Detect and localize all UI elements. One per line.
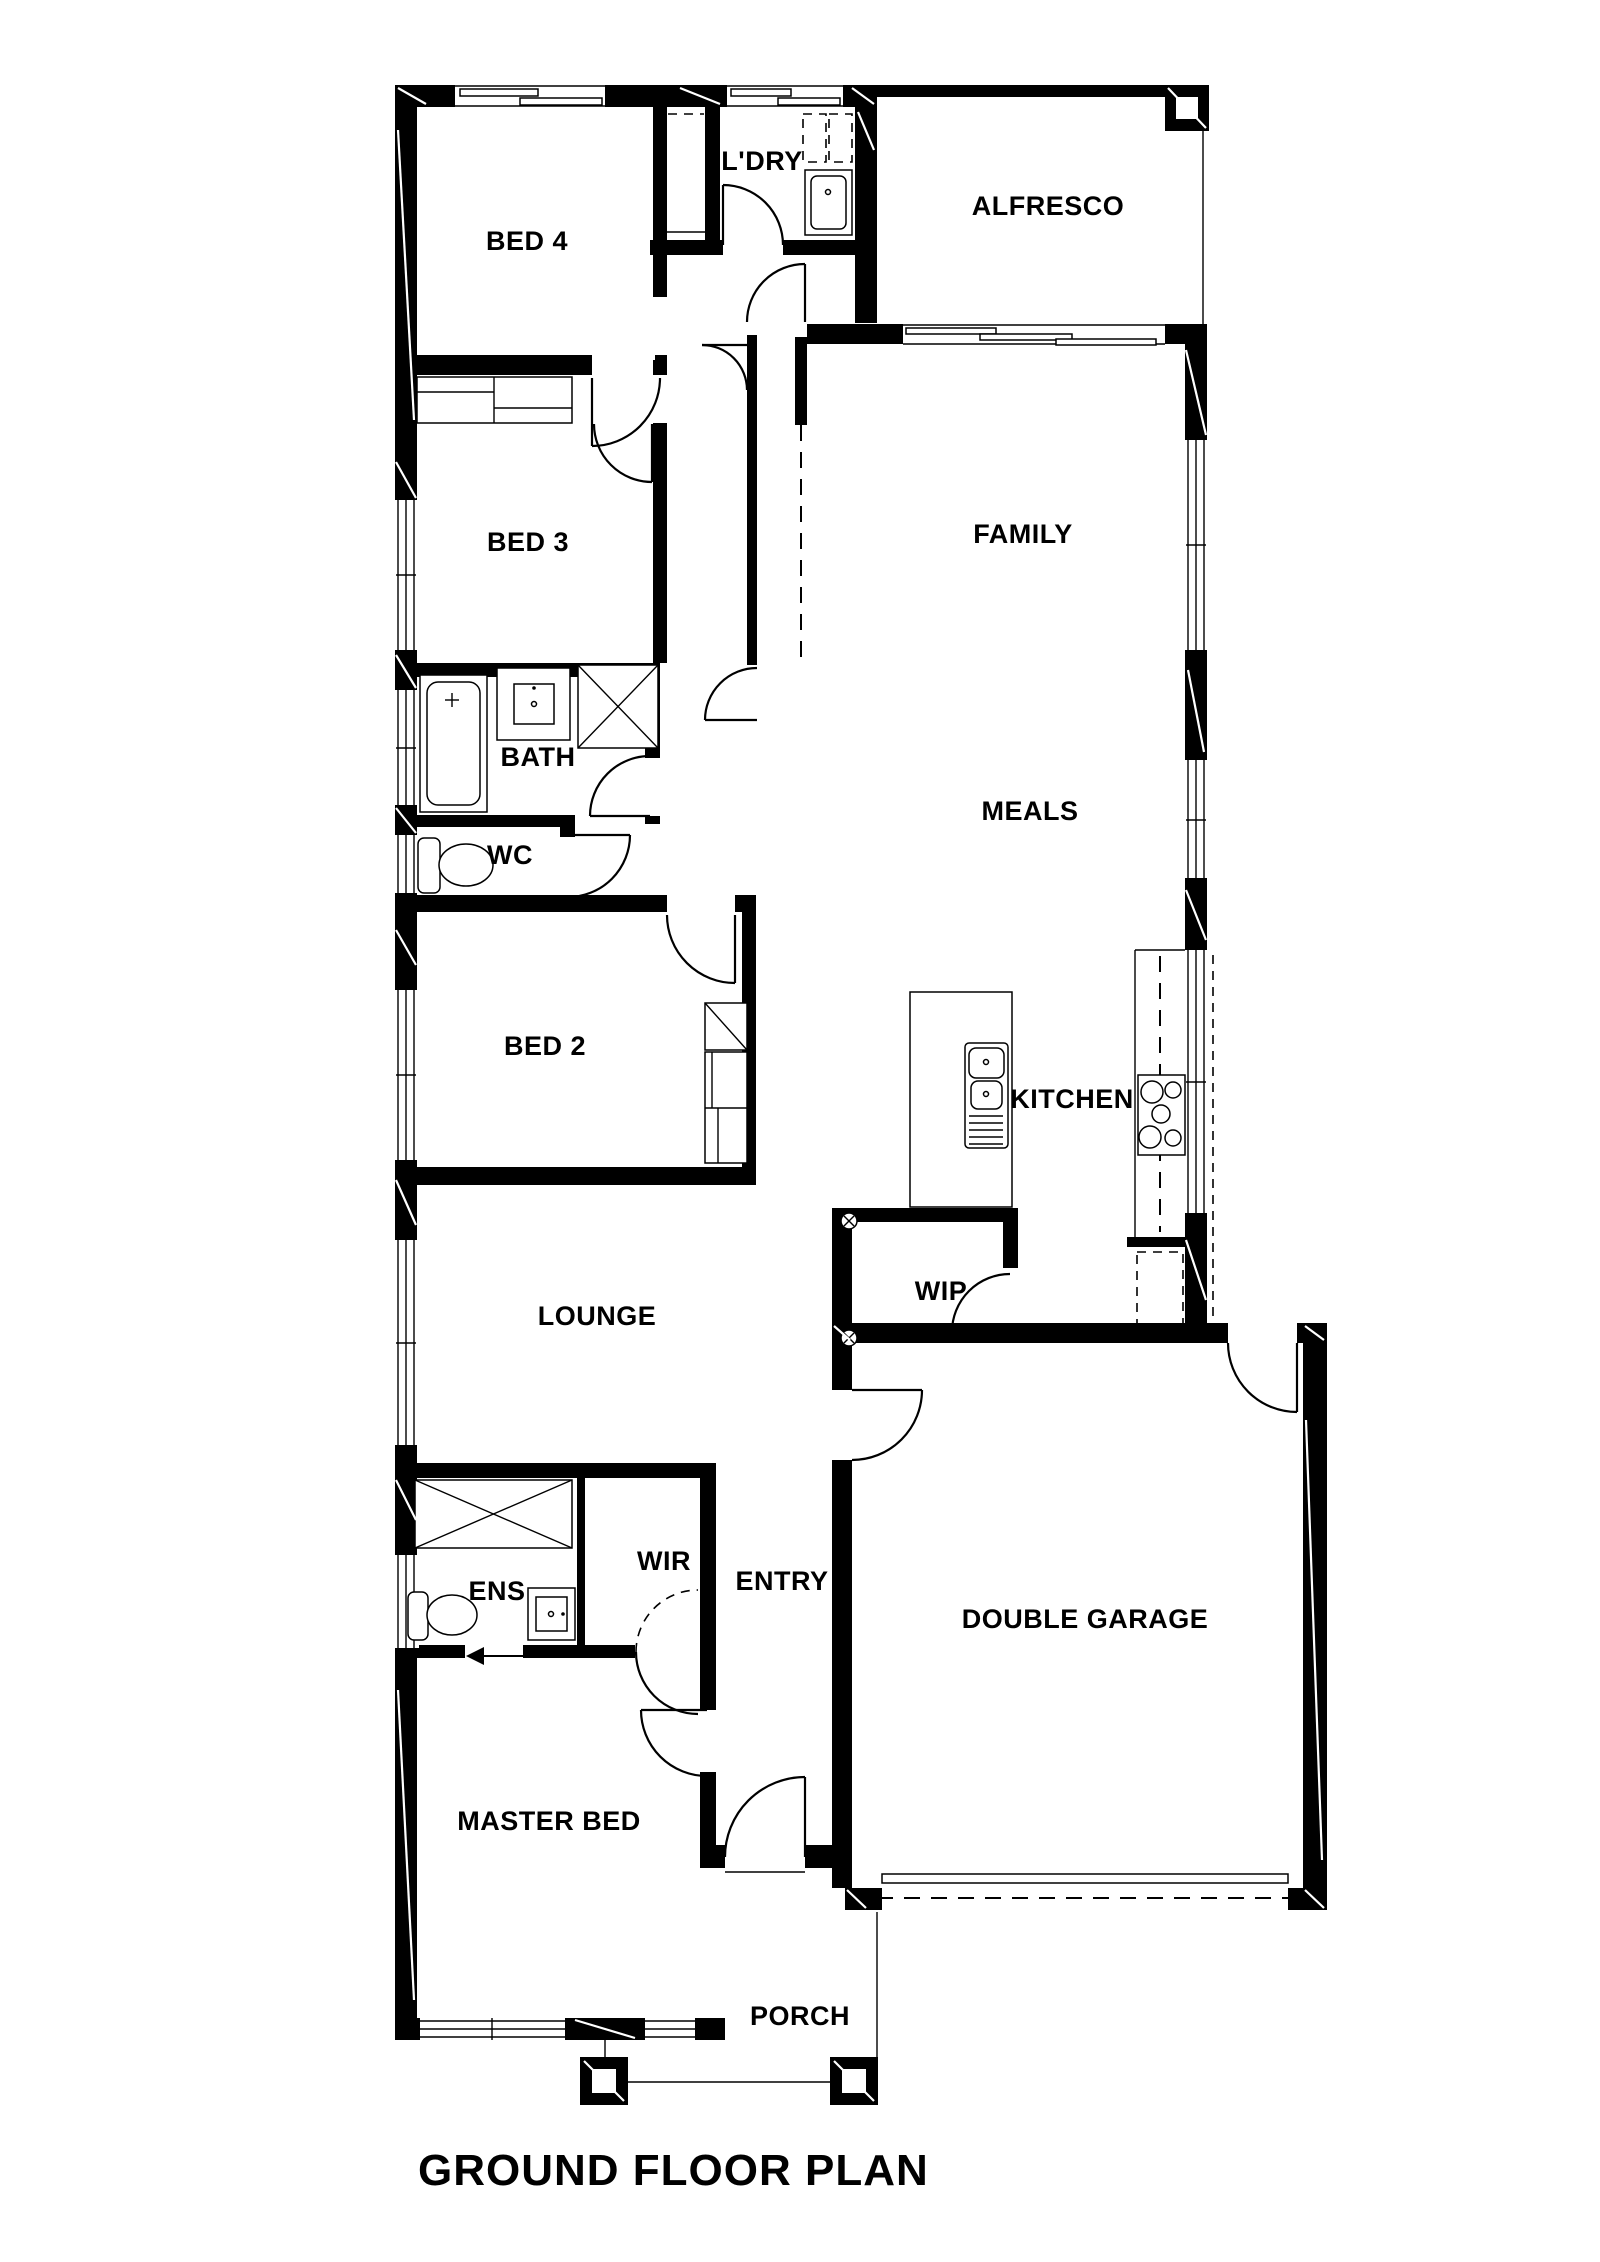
room-label-kitchen: KITCHEN — [1010, 1084, 1134, 1114]
wall-suite-top — [395, 1463, 716, 1478]
window-wc — [393, 835, 419, 893]
room-label-wir: WIR — [637, 1546, 691, 1576]
door-ldry — [723, 185, 783, 245]
wall-bath-bottom — [395, 815, 575, 827]
room-label-porch: PORCH — [750, 2001, 850, 2031]
wall-bed3-right — [653, 423, 667, 663]
wardrobe-bed3-icon — [417, 377, 572, 423]
wall-wip-top — [845, 1208, 1018, 1222]
door-lobby — [747, 264, 805, 322]
room-label-garage: DOUBLE GARAGE — [962, 1604, 1209, 1634]
room-label-master: MASTER BED — [457, 1806, 641, 1836]
wall-bed2-top-left — [395, 895, 667, 912]
porch-slab-edge — [605, 1912, 877, 2082]
room-label-ldry: L'DRY — [721, 146, 802, 176]
room-label-family: FAMILY — [973, 519, 1073, 549]
wall-bed2-top-right — [735, 895, 756, 912]
room-label-bed4: BED 4 — [486, 226, 568, 256]
porch-columns — [580, 2057, 878, 2105]
wall-family-top — [807, 324, 903, 344]
floor-plan-canvas: BED 4 L'DRY ALFRESCO FAMILY MEALS BED 3 … — [0, 0, 1600, 2262]
kitchen-island-icon — [910, 992, 1012, 1207]
window-bed2 — [393, 990, 419, 1160]
window-master-a — [420, 2016, 565, 2042]
wall-bed2-bottom — [395, 1167, 756, 1185]
wall-garage-left-a — [832, 1343, 852, 1390]
wall-family-top-corner — [1165, 324, 1207, 344]
wall-master-right — [700, 1772, 716, 1847]
wall-garage-right — [1303, 1323, 1327, 1910]
door-bed2 — [667, 915, 735, 983]
wall-front-right — [805, 1845, 852, 1868]
window-master-b — [645, 2016, 695, 2042]
window-lounge — [393, 1240, 419, 1445]
wall-bench-end — [1127, 1237, 1185, 1247]
door-front-entry — [725, 1777, 805, 1872]
window-bath — [393, 690, 419, 805]
wall-bed4-right — [653, 107, 667, 297]
room-label-bath: BATH — [501, 742, 576, 772]
wall-bath-right-stub — [645, 816, 660, 824]
room-label-lounge: LOUNGE — [538, 1301, 657, 1331]
wall-alfresco-top — [877, 85, 1167, 97]
wall-bed4-bottom-stub — [655, 355, 667, 375]
vanity-ens-icon — [528, 1588, 575, 1640]
wall-ens-wir-divider — [577, 1478, 585, 1645]
door-entry-garage — [852, 1390, 922, 1460]
window-family — [1183, 440, 1209, 650]
garage-door — [850, 1874, 1300, 1898]
wardrobe-bed2-icon — [705, 1003, 747, 1163]
door-wc — [568, 835, 630, 897]
toilet-icon — [418, 838, 493, 893]
cooktop-icon — [1138, 1075, 1185, 1155]
room-label-wc: WC — [487, 840, 533, 870]
room-label-bed3: BED 3 — [487, 527, 569, 557]
door-bed4 — [592, 378, 660, 446]
wall-ens-bottom-right — [523, 1645, 635, 1658]
wall-wip-right — [1003, 1208, 1018, 1268]
window-bed4 — [455, 83, 605, 109]
room-label-ens: ENS — [468, 1576, 525, 1606]
fridge-space-icon — [1137, 1252, 1183, 1332]
wall-alfresco-left — [855, 107, 877, 323]
reference-lines — [605, 425, 1213, 2082]
window-ldry — [727, 83, 843, 109]
floor-plan-page: BED 4 L'DRY ALFRESCO FAMILY MEALS BED 3 … — [0, 0, 1600, 2262]
bathtub-icon — [420, 675, 487, 812]
wall-bed4-bottom — [395, 355, 592, 375]
door-master — [641, 1710, 707, 1776]
room-label-meals: MEALS — [982, 796, 1079, 826]
room-label-bed2: BED 2 — [504, 1031, 586, 1061]
entry-arrow-icon — [466, 1647, 523, 1665]
window-kitchen-glass — [1183, 950, 1209, 1213]
wall-wc-right — [560, 815, 575, 837]
door-hall-top — [702, 345, 747, 390]
wall-garage-left-b — [832, 1460, 852, 1888]
vanity-basin-icon — [497, 668, 570, 740]
wall-ldry-bottom-left — [650, 240, 723, 255]
window-bed3 — [393, 500, 419, 650]
room-label-wip: WIP — [915, 1276, 968, 1306]
wall-hall-family — [747, 335, 757, 665]
wall-garage-top — [832, 1323, 1228, 1343]
wall-ldry-left — [705, 107, 720, 240]
room-label-entry: ENTRY — [735, 1566, 828, 1596]
door-bed3 — [594, 424, 652, 482]
wall-family-nib — [795, 337, 807, 425]
door-bath — [590, 756, 650, 816]
sliding-stacker-door — [903, 325, 1165, 345]
overhead-cupboard-icon — [803, 114, 852, 162]
door-hall-bottom — [705, 668, 757, 720]
linen-cupboard-icon — [667, 114, 705, 232]
window-meals — [1183, 760, 1209, 878]
shower-icon — [578, 665, 658, 748]
wall-ldry-bottom-right — [783, 240, 857, 255]
page-title: GROUND FLOOR PLAN — [418, 2146, 929, 2195]
room-label-alfresco: ALFRESCO — [972, 191, 1125, 221]
wall-front-left — [700, 1845, 725, 1868]
door-garage-side — [1228, 1343, 1297, 1412]
wall-wir-right — [700, 1465, 716, 1710]
shower-ens-icon — [415, 1480, 572, 1548]
laundry-trough-icon — [805, 170, 852, 235]
door-wir — [636, 1590, 698, 1714]
toilet-ens-icon — [408, 1592, 477, 1640]
